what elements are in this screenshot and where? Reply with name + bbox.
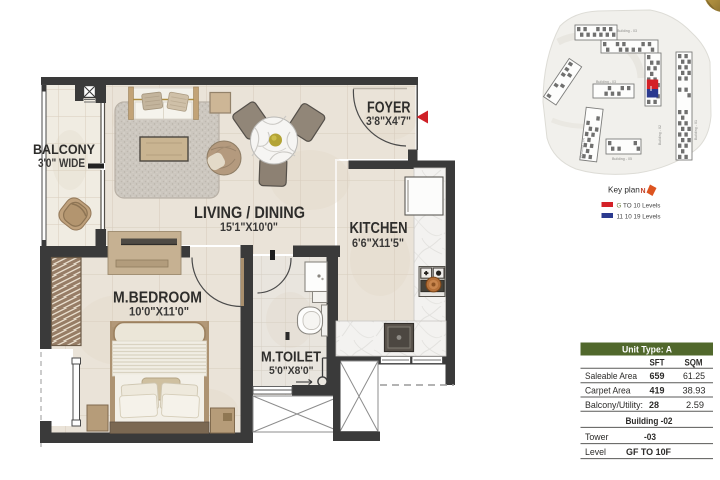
svg-text:SQM: SQM bbox=[685, 357, 703, 368]
svg-text:FOYER: FOYER bbox=[367, 100, 411, 117]
svg-text:3'8"X4'7": 3'8"X4'7" bbox=[366, 116, 411, 128]
svg-text:M.TOILET: M.TOILET bbox=[261, 350, 321, 366]
svg-text:Saleable Area: Saleable Area bbox=[585, 370, 638, 381]
svg-text:15'1"X10'0": 15'1"X10'0" bbox=[220, 220, 278, 234]
svg-text:6'6"X11'5": 6'6"X11'5" bbox=[352, 236, 404, 250]
svg-text:Tower: Tower bbox=[585, 431, 609, 442]
svg-text:Building -02: Building -02 bbox=[626, 415, 673, 426]
svg-text:BALCONY: BALCONY bbox=[33, 142, 95, 157]
svg-text:Building - 03: Building - 03 bbox=[596, 80, 616, 84]
svg-text:38.93: 38.93 bbox=[683, 385, 706, 396]
svg-text:N: N bbox=[641, 188, 646, 195]
svg-text:28: 28 bbox=[649, 399, 659, 410]
svg-text:Balcony/Utility:: Balcony/Utility: bbox=[585, 399, 643, 410]
svg-text:SFT: SFT bbox=[650, 357, 665, 368]
svg-text:5'0"X8'0": 5'0"X8'0" bbox=[269, 365, 314, 377]
svg-text:659: 659 bbox=[650, 370, 665, 381]
svg-text:419: 419 bbox=[650, 385, 665, 396]
svg-text:Building - 05: Building - 05 bbox=[612, 157, 632, 161]
svg-text:Level: Level bbox=[585, 446, 606, 457]
svg-text:Unit Type: A: Unit Type: A bbox=[622, 344, 672, 354]
svg-text:11 10 19 Levels: 11 10 19 Levels bbox=[617, 213, 661, 220]
svg-text:2.59: 2.59 bbox=[686, 399, 704, 410]
svg-text:G TO 10 Levels: G TO 10 Levels bbox=[617, 202, 661, 209]
svg-text:Carpet Area: Carpet Area bbox=[585, 385, 631, 396]
svg-text:Key plan: Key plan bbox=[608, 186, 640, 195]
svg-text:61.25: 61.25 bbox=[683, 370, 705, 381]
svg-text:10'0"X11'0": 10'0"X11'0" bbox=[129, 305, 189, 319]
svg-text:KITCHEN: KITCHEN bbox=[350, 220, 408, 237]
svg-text:3'0" WIDE: 3'0" WIDE bbox=[38, 158, 85, 170]
svg-text:GF TO 10F: GF TO 10F bbox=[626, 446, 671, 457]
svg-text:Building - 01: Building - 01 bbox=[694, 120, 698, 140]
svg-text:Building - 02: Building - 02 bbox=[658, 125, 662, 145]
svg-text:-03: -03 bbox=[644, 431, 656, 442]
svg-text:Building - 03: Building - 03 bbox=[617, 29, 637, 33]
